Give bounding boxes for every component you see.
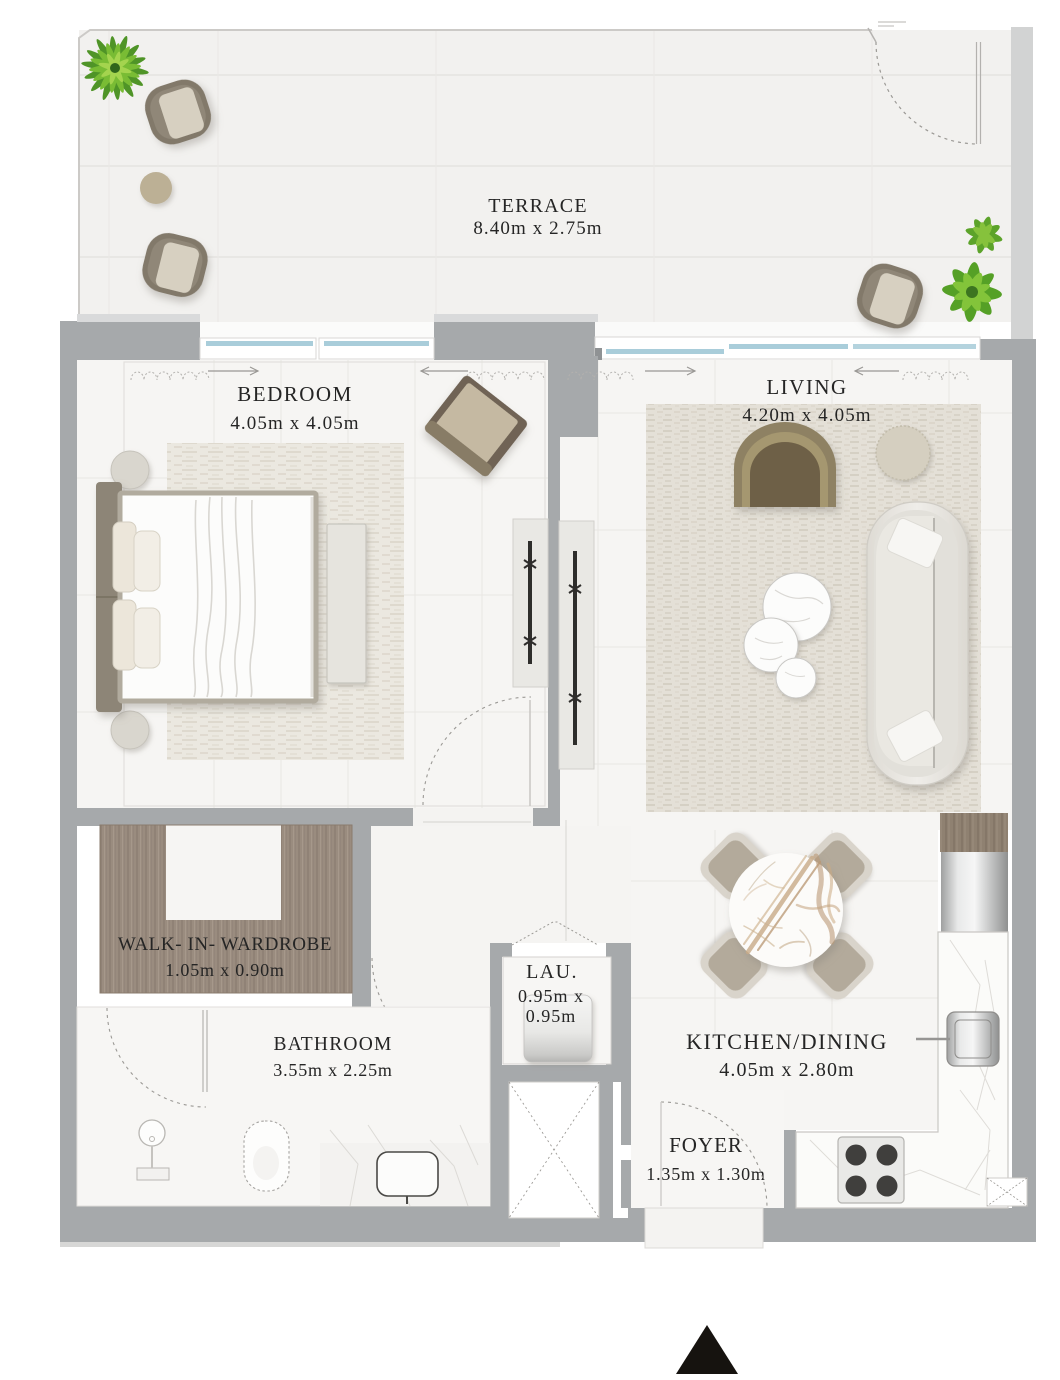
svg-text:FOYER: FOYER — [669, 1133, 743, 1157]
svg-text:BATHROOM: BATHROOM — [273, 1034, 392, 1055]
svg-text:BEDROOM: BEDROOM — [237, 382, 353, 406]
svg-text:0.95m: 0.95m — [526, 1006, 577, 1026]
svg-text:4.05m x 4.05m: 4.05m x 4.05m — [230, 413, 359, 434]
svg-text:KITCHEN/DINING: KITCHEN/DINING — [686, 1029, 888, 1054]
svg-text:3.55m x 2.25m: 3.55m x 2.25m — [273, 1060, 392, 1080]
svg-text:4.05m x 2.80m: 4.05m x 2.80m — [719, 1059, 854, 1081]
svg-text:8.40m x 2.75m: 8.40m x 2.75m — [473, 218, 602, 239]
svg-text:TERRACE: TERRACE — [488, 195, 588, 217]
svg-text:4.20m x 4.05m: 4.20m x 4.05m — [742, 405, 871, 426]
svg-text:1.35m x 1.30m: 1.35m x 1.30m — [646, 1164, 765, 1184]
svg-text:LIVING: LIVING — [766, 375, 847, 399]
svg-text:0.95m x: 0.95m x — [518, 986, 584, 1006]
svg-text:1.05m x 0.90m: 1.05m x 0.90m — [165, 960, 284, 980]
svg-text:WALK- IN- WARDROBE: WALK- IN- WARDROBE — [118, 934, 332, 955]
svg-text:LAU.: LAU. — [526, 961, 578, 983]
